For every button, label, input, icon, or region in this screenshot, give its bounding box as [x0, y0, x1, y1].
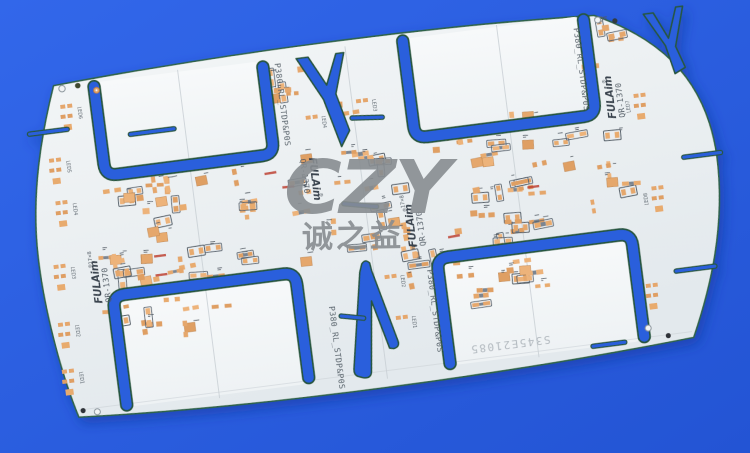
pcb-photo-canvas: LED6LED5LED4LED3LED2LED1LED7LED8LED6LED4…: [0, 0, 750, 453]
smd-footprint: [477, 288, 494, 293]
watermark-chinese: 诚之益: [302, 218, 405, 256]
smd-footprint: [454, 228, 462, 235]
smd-footprint: [471, 157, 484, 168]
smd-footprint: [470, 210, 477, 217]
pcb-photo: LED6LED5LED4LED3LED2LED1LED7LED8LED6LED4…: [0, 0, 750, 453]
smd-footprint: [482, 157, 494, 167]
watermark-czy: CZY: [284, 144, 458, 230]
smd-footprint: [136, 195, 144, 202]
smd-footprint: [137, 274, 145, 281]
smd-footprint: [141, 254, 152, 264]
smd-footprint: [155, 196, 167, 207]
smd-footprint: [179, 204, 187, 211]
